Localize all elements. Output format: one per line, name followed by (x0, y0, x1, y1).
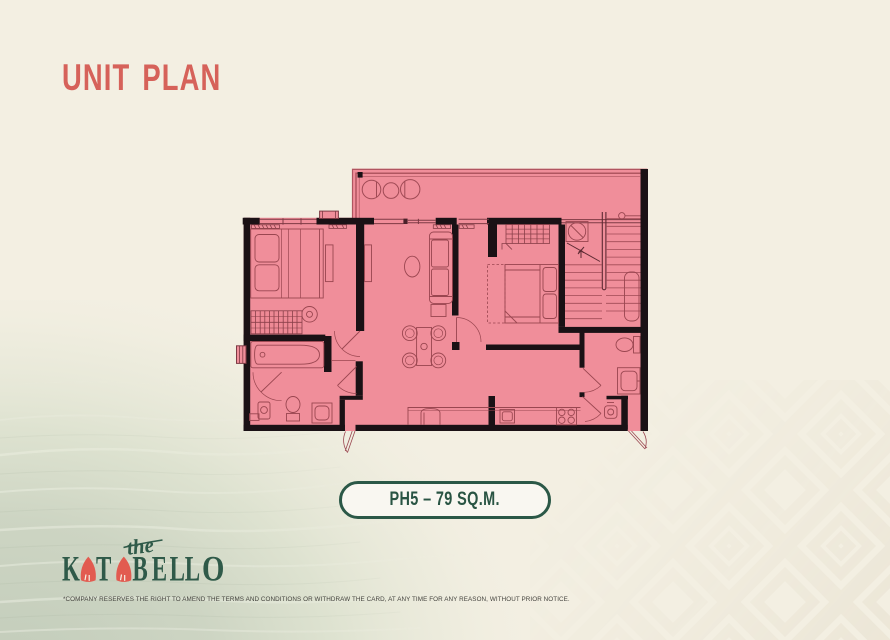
svg-text:T: T (96, 548, 111, 588)
svg-text:B: B (132, 548, 147, 588)
svg-text:K: K (62, 548, 80, 588)
svg-text:L: L (185, 548, 200, 588)
svg-text:O: O (202, 550, 224, 590)
svg-text:E: E (152, 548, 167, 588)
svg-text:L: L (170, 548, 185, 588)
